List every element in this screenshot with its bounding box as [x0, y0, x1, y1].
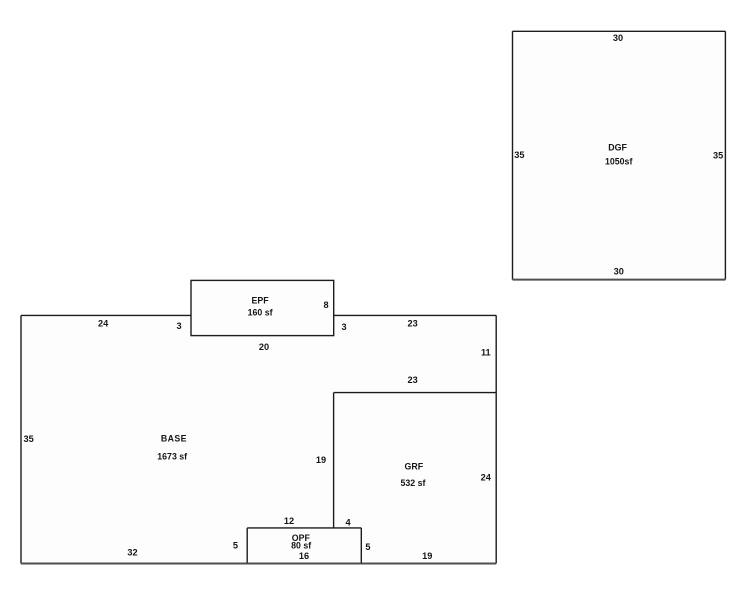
svg-text:1050sf: 1050sf — [605, 156, 632, 166]
svg-text:19: 19 — [422, 551, 432, 561]
svg-text:12: 12 — [284, 516, 294, 526]
svg-text:35: 35 — [713, 150, 723, 160]
svg-text:30: 30 — [613, 33, 623, 43]
svg-text:19: 19 — [316, 455, 326, 465]
svg-text:GRF: GRF — [405, 462, 424, 472]
svg-text:35: 35 — [24, 434, 34, 444]
svg-text:5: 5 — [233, 541, 238, 551]
svg-text:4: 4 — [345, 517, 351, 527]
svg-text:11: 11 — [481, 348, 491, 358]
svg-text:EPF: EPF — [252, 295, 270, 305]
svg-text:8: 8 — [323, 300, 328, 310]
svg-text:16: 16 — [299, 551, 309, 561]
svg-text:BASE: BASE — [161, 434, 187, 444]
svg-text:23: 23 — [407, 319, 417, 329]
svg-text:24: 24 — [98, 318, 109, 328]
svg-text:5: 5 — [365, 542, 370, 552]
svg-text:160 sf: 160 sf — [248, 307, 273, 317]
svg-text:1673 sf: 1673 sf — [157, 451, 187, 461]
svg-text:23: 23 — [407, 375, 417, 385]
svg-text:3: 3 — [341, 322, 346, 332]
svg-text:30: 30 — [614, 267, 624, 277]
svg-text:32: 32 — [127, 547, 137, 557]
svg-text:20: 20 — [259, 342, 269, 352]
svg-text:3: 3 — [177, 321, 182, 331]
svg-text:532 sf: 532 sf — [401, 478, 426, 488]
svg-text:80 sf: 80 sf — [291, 541, 311, 551]
svg-text:DGF: DGF — [608, 143, 627, 153]
svg-text:24: 24 — [481, 473, 492, 483]
svg-text:35: 35 — [514, 150, 524, 160]
